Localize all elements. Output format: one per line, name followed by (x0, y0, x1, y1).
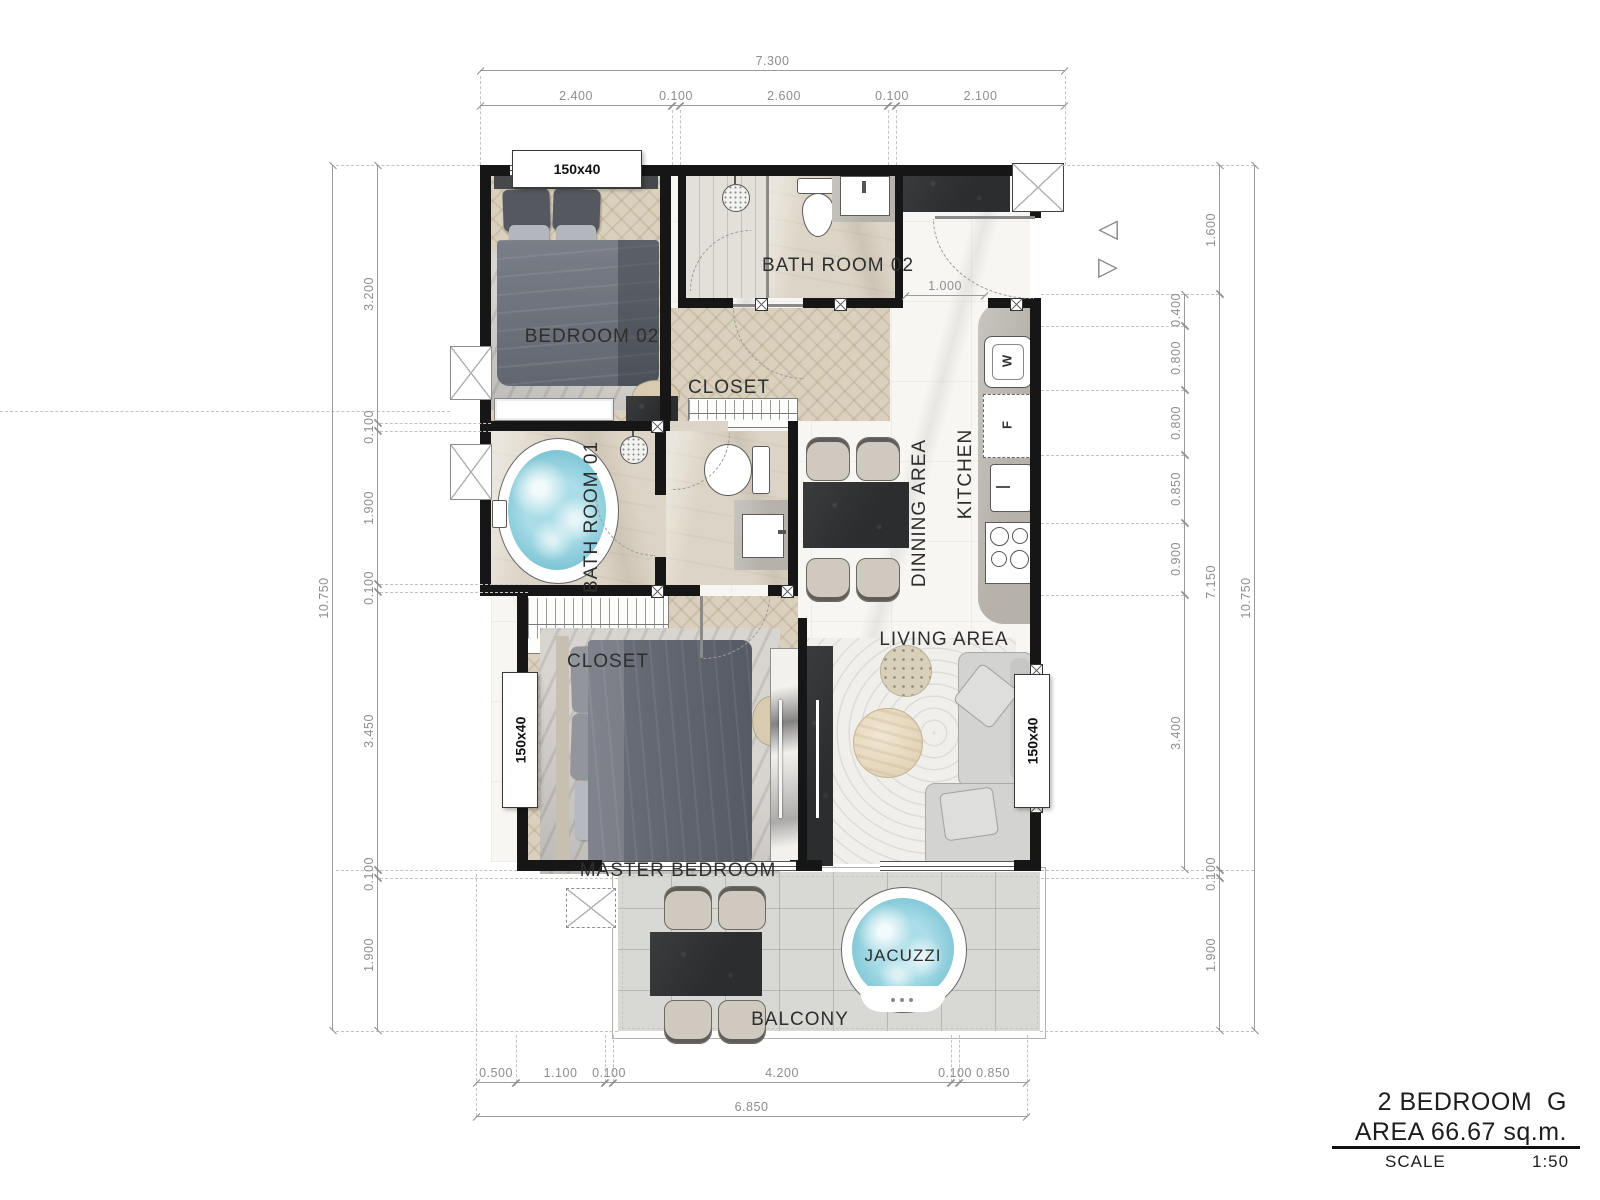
extension-line (896, 110, 897, 165)
dim-right-inner-seg: 3.400 (1184, 595, 1185, 870)
extension-line (380, 423, 491, 424)
dim-left-seg: 3.200 (377, 165, 378, 423)
wall-corridor-top-a (678, 298, 733, 308)
door-gap-bath01 (655, 495, 666, 557)
balcony-chair (664, 1000, 712, 1044)
floor-plan-canvas: W F (0, 0, 1600, 1200)
window-tag-text: 150x40 (1024, 718, 1040, 765)
column-marker (781, 585, 794, 598)
wall-bath01-bottom (480, 585, 655, 596)
window-tag-text: 150x40 (512, 717, 528, 764)
dim-bottom-seg: 0.850 (959, 1082, 1027, 1083)
window-tag-bedroom02: 150x40 (512, 150, 642, 188)
extension-line (680, 110, 681, 165)
dim-left-total: 10.750 (332, 165, 333, 1031)
column-marker (755, 298, 768, 311)
room-label-living: LIVING AREA (879, 629, 1008, 651)
jacuzzi-jet-icon (900, 998, 904, 1002)
jacuzzi-jet-icon (909, 998, 913, 1002)
bathtub-faucet (492, 500, 507, 528)
wall-bedroom02-bottom (480, 421, 671, 431)
dim-right-inner-seg: 0.900 (1184, 523, 1185, 595)
dim-left-seg: 3.450 (377, 592, 378, 870)
bedroom02-console (494, 398, 614, 421)
dim-left-seg: 1.900 (377, 878, 378, 1031)
extension-line (480, 76, 481, 165)
burner-icon (991, 551, 1007, 567)
dim-right-outer-seg: 1.600 (1219, 165, 1220, 294)
wc-sink-basin (742, 514, 784, 558)
title-line1: 2 BEDROOM G (1378, 1088, 1567, 1117)
extension-line (1041, 455, 1184, 456)
column-marker (651, 420, 664, 433)
tv-master (779, 700, 782, 818)
extension-line (476, 874, 477, 1116)
tv-panel-living (807, 646, 833, 866)
wall-tv (798, 618, 807, 871)
bath02-door-leaf (733, 304, 803, 307)
dim-bottom-seg: 1.100 (516, 1082, 605, 1083)
room-label-dining: DINNING AREA (909, 439, 931, 587)
dim-right-total: 10.750 (1254, 165, 1255, 1031)
extension-line (1027, 1035, 1028, 1116)
extension-line (380, 584, 528, 585)
wall-bath02-right (895, 176, 903, 308)
jacuzzi-jet-icon (891, 998, 895, 1002)
dining-chair (856, 558, 900, 602)
room-label-closet-top: CLOSET (688, 377, 770, 399)
room-label-bathroom01: BATH ROOM 01 (581, 441, 603, 593)
room-label-balcony: BALCONY (751, 1009, 849, 1031)
room-label-jacuzzi: JACUZZI (865, 946, 942, 966)
column-marker (1010, 298, 1023, 311)
extension-line (380, 878, 618, 879)
dim-bottom-seg: 0.500 (476, 1082, 516, 1083)
wall-bedroom02-right (660, 176, 671, 431)
dim-bottom-total: 6.850 (476, 1116, 1027, 1117)
burner-icon (1010, 550, 1029, 569)
bath01-shower-head-icon (620, 436, 648, 464)
sliding-door-living-balcony (880, 861, 1014, 871)
dining-chair (806, 558, 850, 602)
dim-top-seg: 2.100 (896, 105, 1065, 106)
extension-line (1041, 390, 1184, 391)
window-tag-master: 150x40 (502, 672, 538, 808)
balcony-table (650, 932, 762, 996)
entry-arrow-left-icon: ◁ (1098, 216, 1118, 242)
balcony-chair (664, 886, 712, 930)
extension-line (672, 110, 673, 165)
burner-icon (990, 527, 1009, 546)
wall-bottom-c (1014, 860, 1041, 871)
washer-label: W (1000, 355, 1015, 367)
shower02-head-icon (722, 184, 750, 212)
shaft-box (1012, 163, 1064, 212)
dim-right-outer-seg: 1.900 (1219, 878, 1220, 1031)
dim-top-seg: 2.600 (680, 105, 888, 106)
living-pouf (880, 645, 932, 697)
dim-top-total: 7.300 (480, 70, 1065, 71)
extension-line (1041, 294, 1219, 295)
dim-right-inner-seg: 0.850 (1184, 455, 1185, 523)
wall-wc-right (788, 421, 798, 596)
master-duvet-fold (588, 640, 624, 866)
dining-chair (856, 437, 900, 481)
extension-line (888, 110, 889, 165)
window-tag-text: 150x40 (554, 161, 601, 177)
column-marker (834, 298, 847, 311)
room-label-kitchen: KITCHEN (955, 429, 977, 519)
wc-faucet (778, 530, 786, 534)
dim-entry: 1.000 (905, 295, 985, 296)
entry-arrow-right-icon: ▷ (1098, 254, 1118, 280)
ac-unit-box (566, 888, 616, 928)
extension-line (0, 411, 450, 412)
extension-line (1062, 165, 1254, 166)
kitchen-faucet (996, 486, 1010, 488)
column-marker (651, 585, 664, 598)
window-tag-living: 150x40 (1014, 674, 1050, 808)
fridge-label: F (1000, 421, 1015, 429)
bedroom02-duvet-fold (618, 240, 659, 386)
burner-icon (1012, 528, 1028, 544)
dining-chair (806, 437, 850, 481)
extension-line (1065, 76, 1066, 165)
extension-line (516, 1035, 517, 1082)
shower02-glass (766, 176, 769, 298)
scale-value: 1:50 (1532, 1152, 1569, 1172)
extension-line (336, 165, 480, 166)
title-rule (1332, 1146, 1580, 1149)
wall-shower02-left (678, 176, 686, 308)
dim-top-seg: 2.400 (480, 105, 672, 106)
dining-table (803, 482, 909, 548)
scale-label: SCALE (1385, 1152, 1446, 1172)
balcony-chair (718, 886, 766, 930)
door-gap-wc (670, 421, 728, 431)
ac-unit-box (450, 346, 492, 400)
extension-line (1041, 595, 1184, 596)
ac-unit-box (450, 444, 492, 500)
extension-line (380, 592, 528, 593)
dim-left-seg: 1.900 (377, 431, 378, 584)
dim-right-inner-seg: 0.400 (1184, 294, 1185, 326)
extension-line (1041, 326, 1184, 327)
room-label-closet-master: CLOSET (567, 651, 649, 673)
title-line2: AREA 66.67 sq.m. (1355, 1118, 1567, 1147)
extension-line (380, 431, 491, 432)
tv-living (816, 700, 819, 818)
living-coffee-table (853, 708, 923, 778)
bath02-faucet (862, 181, 866, 193)
wall-entry-bottom (988, 298, 1030, 308)
tv-panel-master (770, 648, 800, 868)
extension-line (1041, 523, 1184, 524)
sofa-cushion (939, 786, 999, 841)
room-label-bedroom02: BEDROOM 02 (525, 326, 660, 348)
dim-bottom-seg: 4.200 (613, 1082, 951, 1083)
dim-right-inner-seg: 0.800 (1184, 326, 1185, 390)
room-label-bathroom02: BATH ROOM 02 (762, 255, 914, 277)
dim-right-outer-seg: 7.150 (1219, 294, 1220, 870)
dim-right-inner-seg: 0.800 (1184, 390, 1185, 455)
wall-corridor-top-b (803, 298, 903, 308)
toilet01-tank (752, 446, 770, 494)
extension-line (1041, 878, 1219, 879)
wall-right-mid (1030, 298, 1041, 676)
kitchen-sink (990, 464, 1032, 512)
